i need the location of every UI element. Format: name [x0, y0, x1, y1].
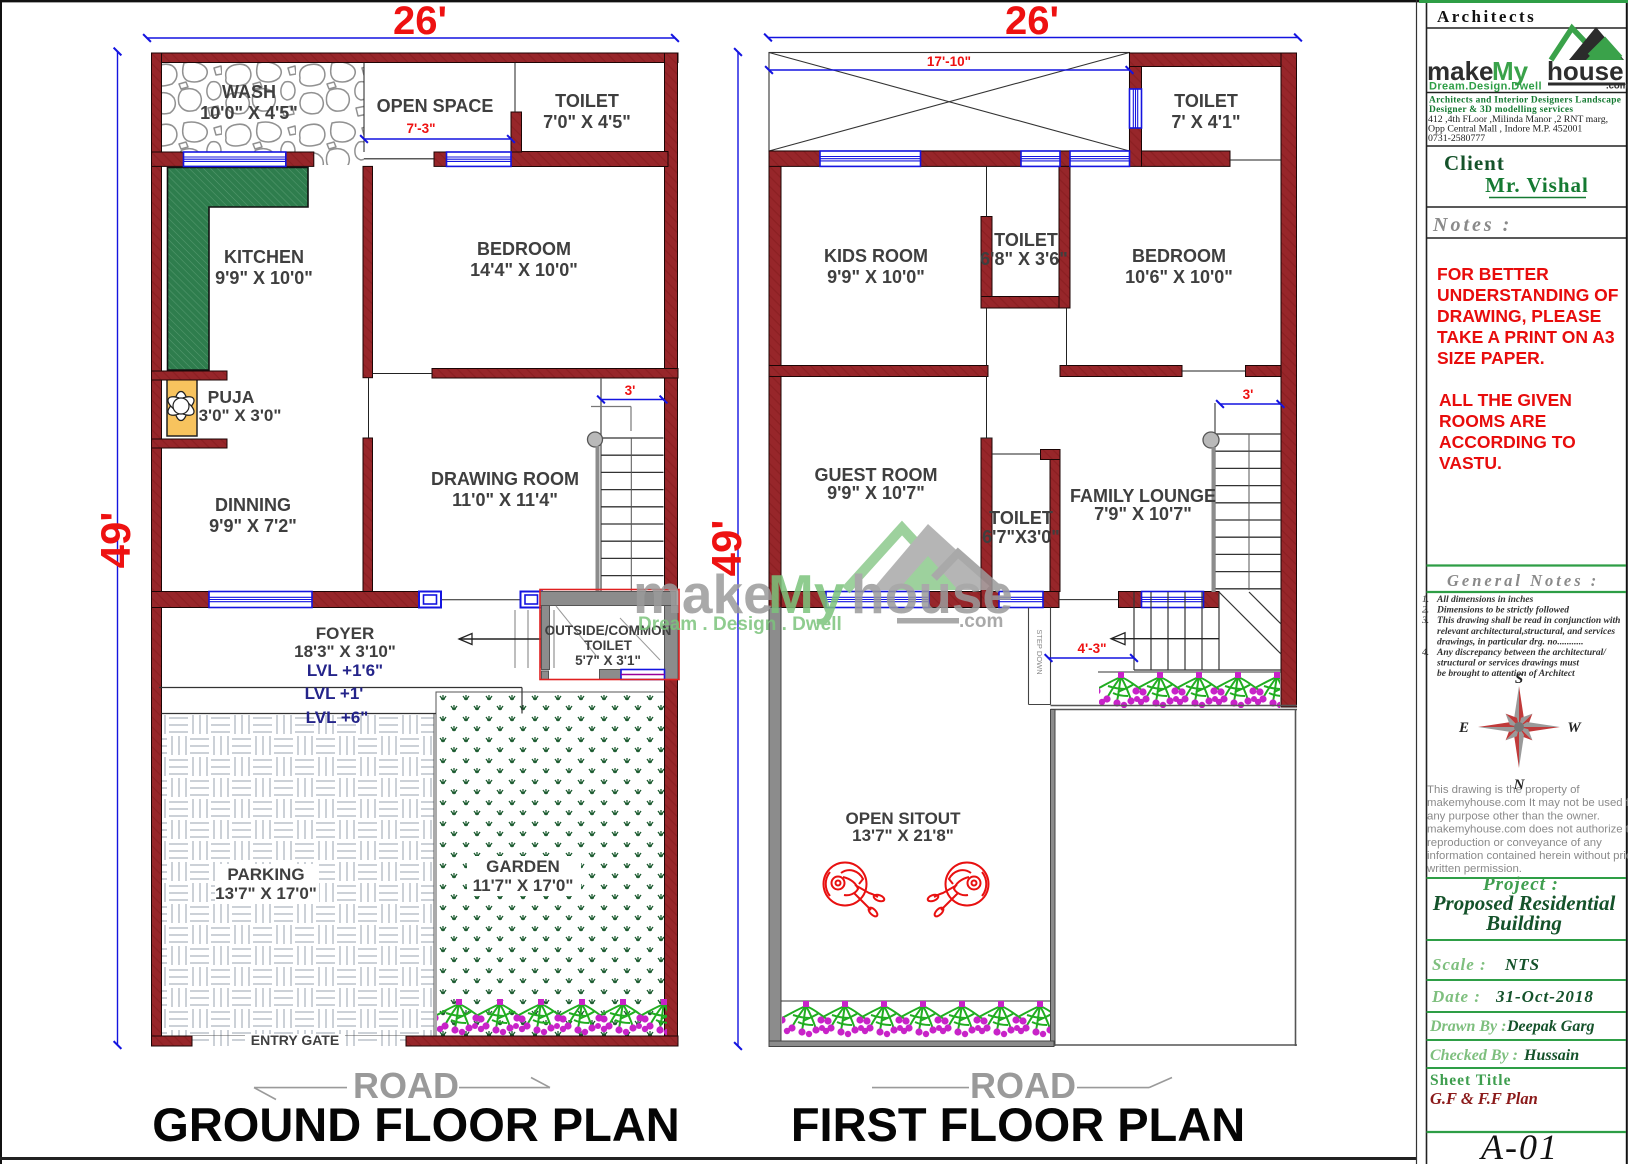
svg-text:PUJA: PUJA: [208, 387, 255, 407]
svg-text:Dream . Design . Dwell: Dream . Design . Dwell: [638, 614, 842, 635]
svg-text:49': 49': [92, 512, 139, 569]
svg-text:13'7" X 21'8": 13'7" X 21'8": [852, 826, 954, 845]
svg-text:26': 26': [393, 0, 447, 43]
svg-text:DRAWING ROOM: DRAWING ROOM: [431, 469, 579, 489]
svg-text:7' X 4'1": 7' X 4'1": [1171, 112, 1240, 132]
svg-text:This drawing shall be read in: This drawing shall be read in conjunctio…: [1437, 616, 1620, 626]
svg-text:26': 26': [1005, 0, 1059, 43]
svg-text:G.F & F.F Plan: G.F & F.F Plan: [1430, 1089, 1538, 1108]
svg-text:FOYER: FOYER: [316, 624, 375, 643]
svg-text:reproduction or conveyance of: reproduction or conveyance of any: [1427, 837, 1602, 849]
svg-text:9'9" X 10'0": 9'9" X 10'0": [215, 268, 313, 288]
svg-text:10'0" X 4'5": 10'0" X 4'5": [200, 103, 298, 123]
svg-text:.com: .com: [1606, 81, 1628, 92]
svg-text:TAKE A PRINT ON A3: TAKE A PRINT ON A3: [1437, 327, 1615, 347]
svg-text:FIRST FLOOR PLAN: FIRST FLOOR PLAN: [791, 1098, 1245, 1151]
svg-text:GARDEN: GARDEN: [486, 857, 560, 876]
svg-text:0731-2580777: 0731-2580777: [1428, 133, 1485, 144]
svg-text:ACCORDING TO: ACCORDING TO: [1439, 432, 1576, 452]
svg-text:2.: 2.: [1422, 606, 1429, 616]
svg-text:31-Oct-2018: 31-Oct-2018: [1495, 987, 1594, 1006]
svg-text:GUEST ROOM: GUEST ROOM: [814, 465, 937, 485]
svg-text:17'-10": 17'-10": [927, 54, 971, 69]
svg-text:13'7" X 17'0": 13'7" X 17'0": [215, 884, 317, 903]
svg-text:FAMILY LOUNGE: FAMILY LOUNGE: [1070, 486, 1216, 506]
svg-text:Hussain: Hussain: [1523, 1047, 1579, 1064]
svg-text:DINNING: DINNING: [215, 495, 291, 515]
svg-text:3.: 3.: [1421, 616, 1429, 626]
svg-text:This drawing is the property o: This drawing is the property of: [1427, 784, 1580, 796]
svg-text:SIZE PAPER.: SIZE PAPER.: [1437, 348, 1545, 368]
svg-text:TOILET: TOILET: [994, 230, 1058, 250]
svg-text:any purpose other than the own: any purpose other than the owner.: [1427, 810, 1600, 822]
svg-text:S: S: [1515, 671, 1523, 687]
svg-text:9'9" X 10'0": 9'9" X 10'0": [827, 267, 925, 287]
svg-text:BEDROOM: BEDROOM: [477, 239, 571, 259]
svg-text:ALL THE GIVEN: ALL THE GIVEN: [1439, 390, 1572, 410]
svg-text:structural or services drawing: structural or services drawings must: [1436, 659, 1579, 669]
svg-text:Client: Client: [1444, 151, 1505, 175]
svg-text:LVL +1'6": LVL +1'6": [307, 661, 383, 680]
svg-text:NTS: NTS: [1504, 955, 1540, 974]
svg-text:All dimensions in inches: All dimensions in inches: [1436, 595, 1534, 605]
svg-text:11'7" X 17'0": 11'7" X 17'0": [473, 876, 574, 895]
svg-text:VASTU.: VASTU.: [1439, 453, 1502, 473]
svg-text:makemyhouse.com does not autho: makemyhouse.com does not authorize the: [1427, 824, 1628, 836]
svg-text:10'6" X 10'0": 10'6" X 10'0": [1125, 267, 1233, 287]
svg-text:A-01: A-01: [1479, 1127, 1559, 1164]
svg-text:information contained herein w: information contained herein without pri…: [1427, 850, 1628, 862]
svg-text:Architects: Architects: [1437, 7, 1536, 26]
svg-text:WASH: WASH: [222, 82, 276, 102]
svg-text:LVL +6": LVL +6": [306, 708, 369, 727]
svg-text:Dream.Design.Dwell: Dream.Design.Dwell: [1429, 81, 1542, 93]
svg-text:General Notes :: General Notes :: [1447, 571, 1599, 590]
svg-text:Mr. Vishal: Mr. Vishal: [1485, 173, 1589, 197]
svg-text:E: E: [1458, 720, 1469, 736]
svg-text:Drawn By :: Drawn By :: [1429, 1018, 1506, 1035]
svg-text:3': 3': [625, 383, 636, 398]
svg-text:Dimensions to be strictly foll: Dimensions to be strictly followed: [1436, 606, 1569, 616]
svg-text:1.: 1.: [1422, 595, 1429, 605]
svg-text:relevant architectural,structu: relevant architectural,structural, and s…: [1437, 627, 1615, 637]
svg-text:OPEN SPACE: OPEN SPACE: [377, 96, 494, 116]
svg-text:4.: 4.: [1422, 648, 1429, 658]
svg-text:6'7"X3'0": 6'7"X3'0": [982, 527, 1060, 547]
svg-text:Scale :: Scale :: [1432, 955, 1487, 974]
svg-text:Deepak Garg: Deepak Garg: [1506, 1018, 1595, 1035]
svg-text:makemyhouse.com It may not be: makemyhouse.com It may not be used for: [1427, 797, 1628, 809]
svg-text:drawings, in particular drg. n: drawings, in particular drg. no.........…: [1437, 637, 1584, 647]
svg-text:Notes :: Notes :: [1432, 214, 1512, 236]
svg-text:11'0" X 11'4": 11'0" X 11'4": [452, 490, 558, 510]
svg-text:Any discrepancy between the ar: Any discrepancy between the architectura…: [1436, 648, 1607, 658]
svg-text:3': 3': [1243, 387, 1254, 402]
svg-text:6'8" X 3'6": 6'8" X 3'6": [980, 249, 1068, 269]
svg-text:STEP DOWN: STEP DOWN: [1035, 629, 1044, 674]
svg-text:7'-3": 7'-3": [406, 121, 435, 136]
svg-text:ENTRY GATE: ENTRY GATE: [251, 1032, 339, 1048]
svg-text:DRAWING, PLEASE: DRAWING, PLEASE: [1437, 306, 1601, 326]
svg-text:18'3" X 3'10": 18'3" X 3'10": [294, 642, 396, 661]
svg-text:UNDERSTANDING OF: UNDERSTANDING OF: [1437, 285, 1619, 305]
svg-text:5'7" X 3'1": 5'7" X 3'1": [575, 653, 641, 668]
svg-text:14'4" X 10'0": 14'4" X 10'0": [470, 260, 578, 280]
svg-text:7'0" X 4'5": 7'0" X 4'5": [543, 112, 631, 132]
svg-text:.com: .com: [959, 611, 1003, 632]
svg-text:4'-3": 4'-3": [1077, 641, 1106, 656]
svg-text:9'9" X 7'2": 9'9" X 7'2": [209, 516, 297, 536]
svg-text:GROUND FLOOR PLAN: GROUND FLOOR PLAN: [152, 1098, 679, 1151]
svg-text:FOR BETTER: FOR BETTER: [1437, 264, 1549, 284]
svg-text:be brought to attention of Ar: be brought to attention of Architect: [1437, 669, 1575, 679]
svg-text:TOILET: TOILET: [584, 638, 633, 653]
svg-text:ROOMS ARE: ROOMS ARE: [1439, 411, 1546, 431]
svg-text:KITCHEN: KITCHEN: [224, 247, 304, 267]
svg-text:Sheet Title: Sheet Title: [1430, 1072, 1511, 1089]
svg-text:TOILET: TOILET: [989, 508, 1053, 528]
svg-text:PARKING: PARKING: [227, 865, 304, 884]
svg-text:Building: Building: [1485, 911, 1562, 935]
svg-text:9'9" X 10'7": 9'9" X 10'7": [827, 483, 925, 503]
svg-text:Checked By :: Checked By :: [1430, 1047, 1518, 1064]
svg-text:Architects and Interior Design: Architects and Interior Designers Landsc…: [1429, 96, 1621, 106]
svg-text:KIDS ROOM: KIDS ROOM: [824, 246, 928, 266]
svg-text:7'9" X 10'7": 7'9" X 10'7": [1094, 504, 1192, 524]
svg-text:Date :: Date :: [1431, 987, 1481, 1006]
svg-text:LVL +1': LVL +1': [305, 684, 364, 703]
svg-text:3'0" X 3'0": 3'0" X 3'0": [199, 406, 282, 425]
svg-text:TOILET: TOILET: [1174, 91, 1238, 111]
svg-text:W: W: [1567, 720, 1582, 736]
svg-text:TOILET: TOILET: [555, 91, 619, 111]
svg-text:BEDROOM: BEDROOM: [1132, 246, 1226, 266]
